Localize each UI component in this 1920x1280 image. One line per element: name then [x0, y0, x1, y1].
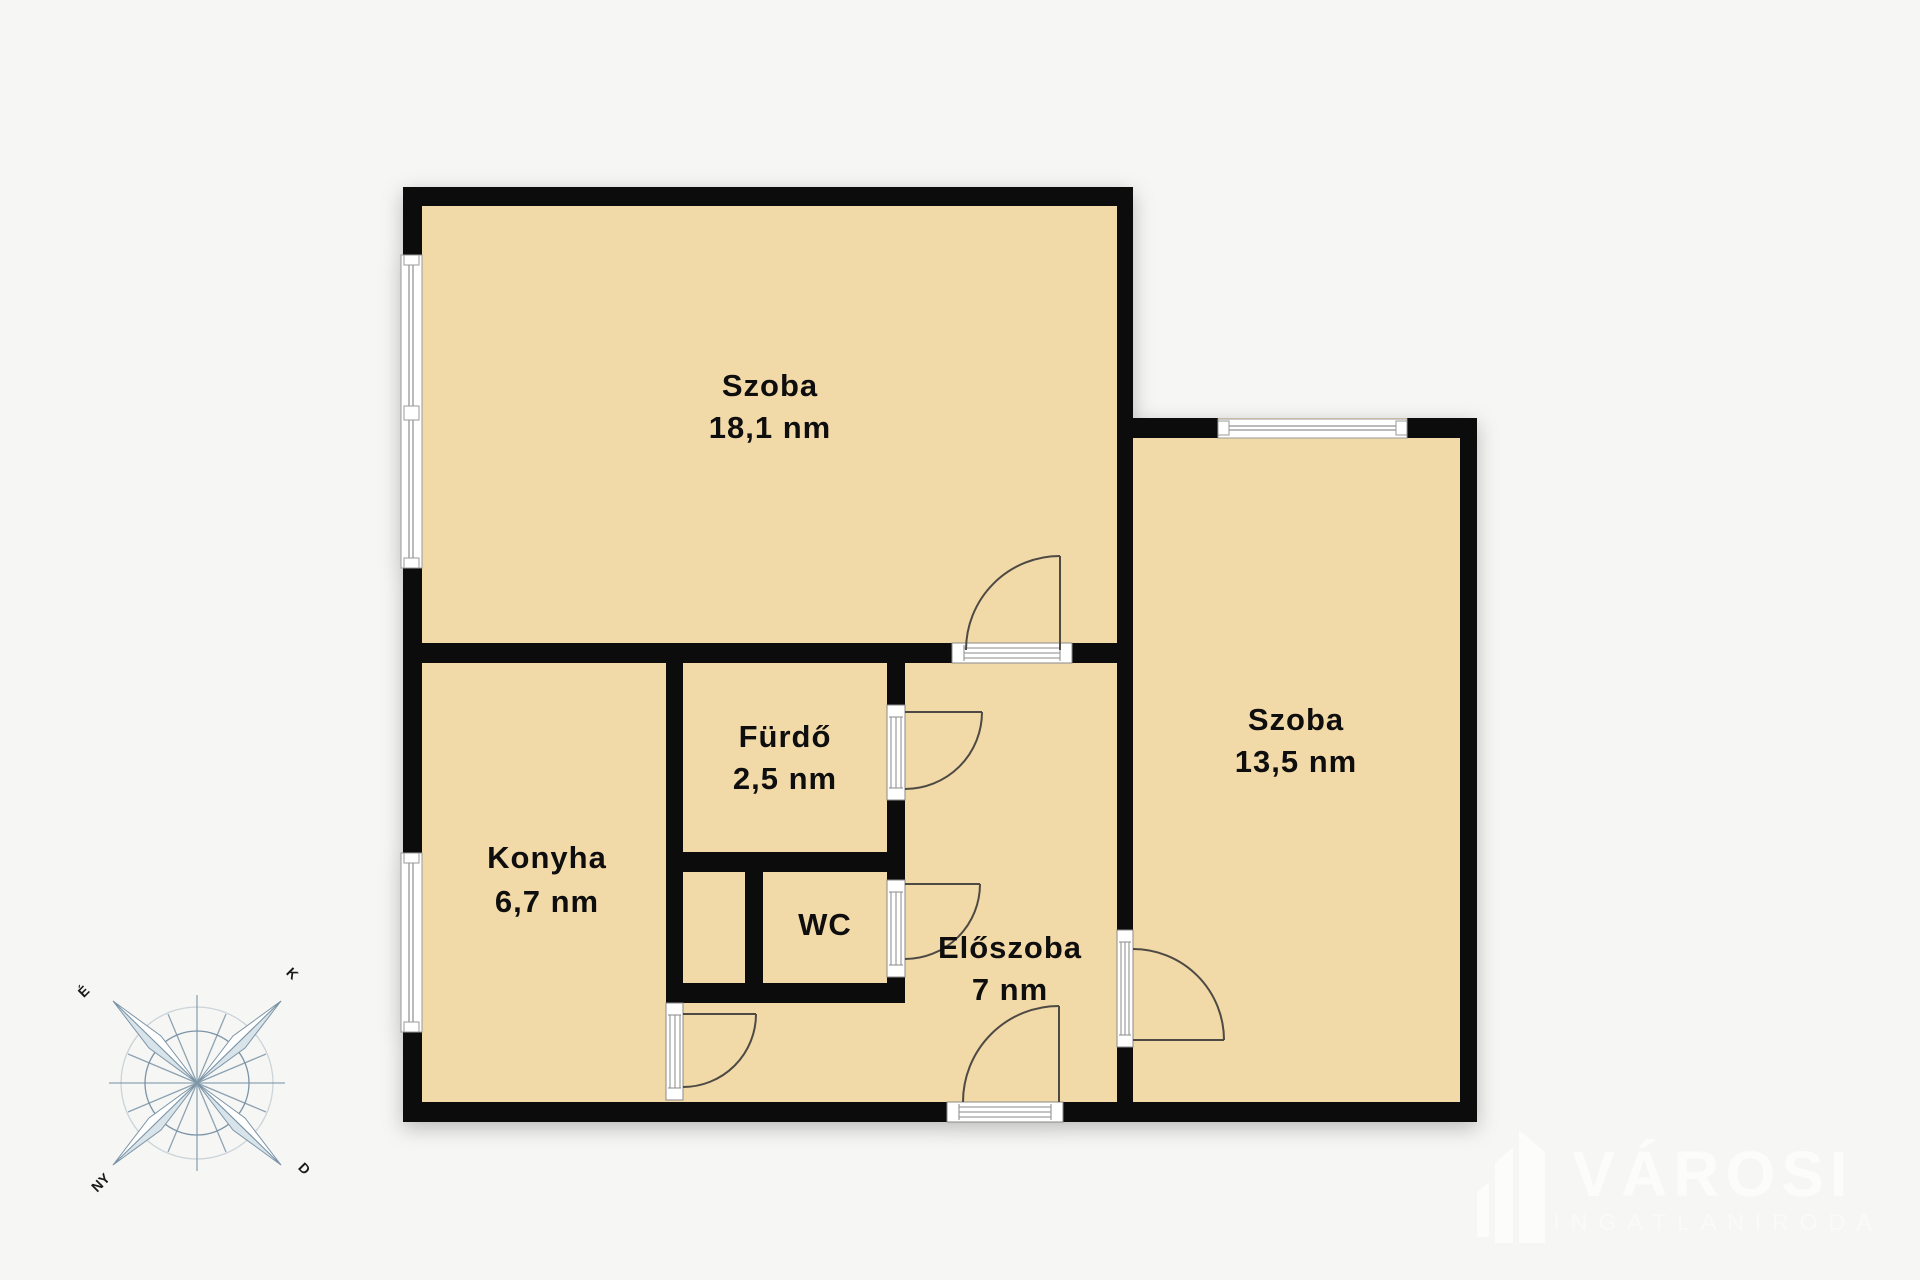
wall-segment [683, 852, 905, 872]
door-frame-room1 [952, 643, 1072, 663]
wall-segment [1133, 418, 1218, 438]
wall-segment [403, 187, 1133, 206]
wall-segment [745, 872, 763, 983]
wall-segment [1407, 418, 1477, 438]
room-area-konyha: 6,7 nm [495, 884, 599, 919]
wall-segment [1063, 1102, 1477, 1122]
room-name-eloszoba: Előszoba [938, 930, 1082, 965]
compass-label-north: É [75, 983, 93, 1001]
wall-segment [887, 800, 905, 880]
room-area-furdo: 2,5 nm [733, 761, 837, 796]
door-frame-entry [947, 1102, 1063, 1122]
room-name-furdo: Fürdő [739, 719, 832, 754]
door-frame-room2 [1117, 930, 1133, 1047]
logo-subtitle-text: INGATLANIRODA [1553, 1209, 1882, 1235]
wall-segment [887, 977, 905, 1003]
wall-segment [1072, 643, 1117, 663]
room-name-szoba1: Szoba [722, 368, 818, 403]
compass-label-west: NY [88, 1169, 114, 1195]
compass-rose: É K NY D [75, 964, 314, 1195]
room-name-konyha: Konyha [487, 840, 607, 875]
window-room1-left [401, 255, 422, 568]
door-frame-wc [887, 880, 905, 977]
wall-segment [666, 663, 683, 1003]
compass-label-east: K [283, 964, 301, 982]
floor-plan [401, 187, 1477, 1122]
window-room2-top [1218, 419, 1407, 438]
wall-segment [666, 983, 905, 1003]
wall-segment [403, 187, 422, 255]
room-area-szoba2: 13,5 nm [1235, 744, 1357, 779]
room-area-eloszoba: 7 nm [972, 972, 1048, 1007]
logo-brand-text: VÁROSI [1572, 1138, 1853, 1210]
window-kitchen-left [401, 853, 422, 1032]
logo-buildings-icon [1477, 1130, 1545, 1243]
wall-segment [1117, 1047, 1133, 1102]
compass-label-south: D [295, 1159, 313, 1177]
door-frame-kitchen [666, 1003, 683, 1100]
wall-segment [1460, 418, 1477, 1122]
floor-plan-page: Szoba 18,1 nm Konyha 6,7 nm Fürdő 2,5 nm… [0, 0, 1920, 1280]
room-area-szoba1: 18,1 nm [709, 410, 831, 445]
wall-segment [403, 1102, 947, 1122]
wall-segment [887, 663, 905, 705]
wall-segment [1117, 187, 1133, 930]
floor-plan-svg: Szoba 18,1 nm Konyha 6,7 nm Fürdő 2,5 nm… [0, 0, 1920, 1280]
room-name-szoba2: Szoba [1248, 702, 1344, 737]
wall-segment [403, 643, 952, 663]
door-frame-bathroom [887, 705, 905, 800]
brand-logo: VÁROSI INGATLANIRODA [1477, 1130, 1883, 1243]
room-name-wc: WC [798, 907, 852, 942]
wall-segment [403, 568, 422, 853]
